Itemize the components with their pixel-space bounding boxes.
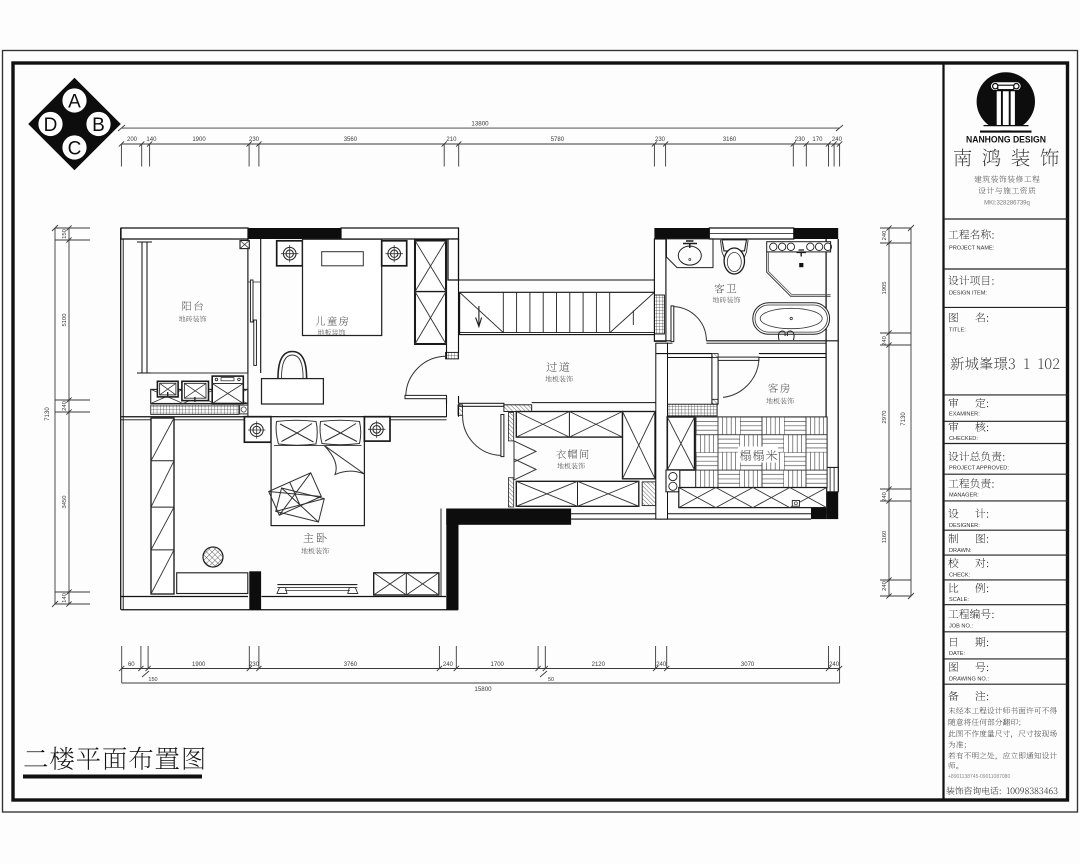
svg-text:140: 140 <box>146 137 157 143</box>
svg-text:240: 240 <box>829 662 840 668</box>
svg-text:3160: 3160 <box>723 137 737 143</box>
svg-text:150: 150 <box>62 229 68 239</box>
svg-text:240: 240 <box>832 137 843 143</box>
svg-text:240: 240 <box>656 662 667 668</box>
svg-text:170: 170 <box>812 137 823 143</box>
svg-text:230: 230 <box>795 137 806 143</box>
svg-text:3560: 3560 <box>344 137 358 143</box>
svg-text:DRAWING NO.:: DRAWING NO.: <box>949 677 989 683</box>
svg-text:PROJECT APPROVED:: PROJECT APPROVED: <box>949 466 1009 472</box>
svg-text:13800: 13800 <box>471 121 489 128</box>
svg-text:CHECK:: CHECK: <box>949 573 971 579</box>
svg-text:5100: 5100 <box>62 314 68 327</box>
svg-text:+8901138745-09011087080: +8901138745-09011087080 <box>948 774 1010 780</box>
svg-text:NANHONG DESIGN: NANHONG DESIGN <box>966 135 1046 145</box>
svg-text:7130: 7130 <box>45 407 51 421</box>
svg-text:PROJECT NAME:: PROJECT NAME: <box>949 246 995 252</box>
svg-text:3760: 3760 <box>344 662 358 668</box>
svg-text:150: 150 <box>148 677 157 683</box>
svg-text:240: 240 <box>882 581 888 591</box>
svg-text:240: 240 <box>62 401 68 411</box>
svg-text:1900: 1900 <box>192 662 206 668</box>
svg-text:1160: 1160 <box>882 531 888 543</box>
svg-text:240: 240 <box>882 231 888 241</box>
svg-text:SCALE:: SCALE: <box>949 597 969 603</box>
svg-text:1900: 1900 <box>192 137 206 143</box>
svg-text:1905: 1905 <box>882 282 888 295</box>
svg-text:DRAWN:: DRAWN: <box>949 548 972 554</box>
svg-text:D: D <box>44 115 58 136</box>
svg-text:B: B <box>92 115 105 136</box>
svg-text:TITLE:: TITLE: <box>949 328 966 334</box>
svg-text:240: 240 <box>443 662 454 668</box>
svg-text:JOB NO.:: JOB NO.: <box>949 624 973 630</box>
svg-text:A: A <box>68 91 81 112</box>
svg-text:230: 230 <box>249 662 260 668</box>
svg-text:EXAMINER:: EXAMINER: <box>949 412 980 418</box>
svg-text:140: 140 <box>62 593 68 603</box>
svg-text:MANAGER:: MANAGER: <box>949 493 979 499</box>
svg-text:DESIGNER:: DESIGNER: <box>949 523 980 529</box>
svg-text:2970: 2970 <box>882 411 888 424</box>
svg-text:240: 240 <box>882 336 888 346</box>
svg-text:210: 210 <box>446 137 457 143</box>
svg-text:15800: 15800 <box>474 686 492 693</box>
svg-text:60: 60 <box>128 662 135 668</box>
svg-text:230: 230 <box>655 137 666 143</box>
svg-text:200: 200 <box>127 137 138 143</box>
svg-text:5780: 5780 <box>551 137 565 143</box>
svg-text:MKI:328286739q: MKI:328286739q <box>984 201 1030 207</box>
svg-text:3450: 3450 <box>62 496 68 509</box>
svg-text:1700: 1700 <box>491 662 505 668</box>
svg-text:3070: 3070 <box>741 662 755 668</box>
svg-text:CHECKED:: CHECKED: <box>949 436 978 442</box>
svg-text:C: C <box>68 138 82 159</box>
svg-text:DATE:: DATE: <box>949 651 966 657</box>
svg-text:DESIGN ITEM:: DESIGN ITEM: <box>949 291 987 297</box>
svg-text:50: 50 <box>548 677 554 683</box>
svg-text:230: 230 <box>249 137 260 143</box>
svg-text:7130: 7130 <box>901 412 907 426</box>
svg-text:2120: 2120 <box>592 662 606 668</box>
svg-text:240: 240 <box>882 492 888 502</box>
